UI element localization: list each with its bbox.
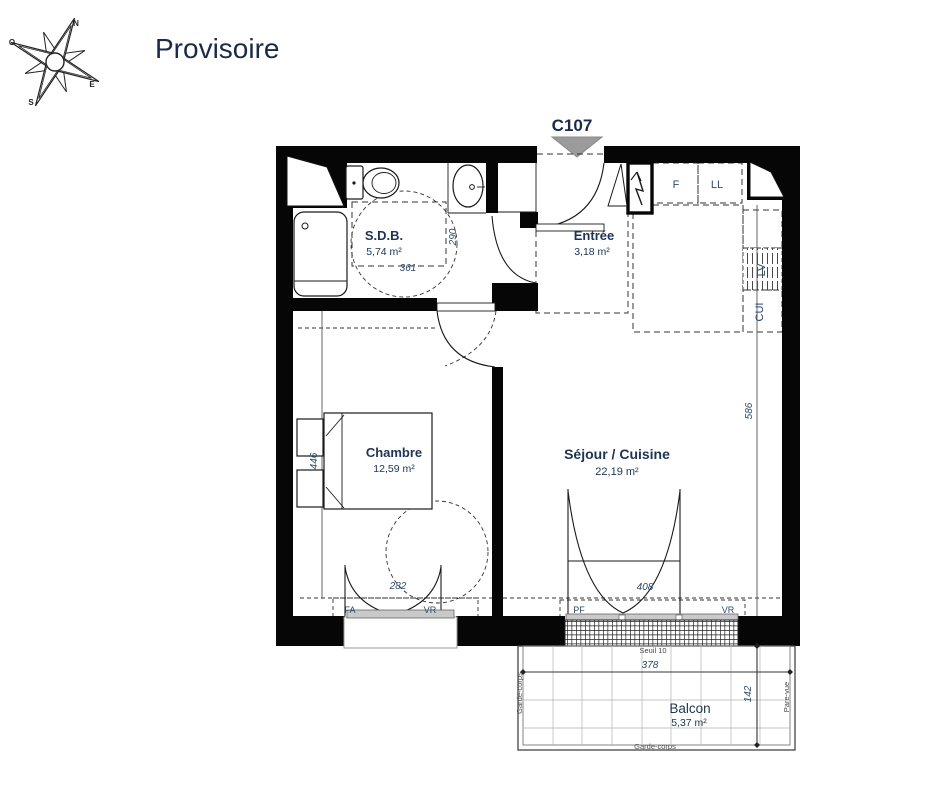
washing-machine-label: LL — [711, 179, 723, 191]
balcon-area: 5,37 m² — [671, 717, 707, 729]
dimension-lines — [322, 205, 757, 616]
tag-fa: FA — [344, 605, 355, 615]
sejour-name: Séjour / Cuisine — [564, 446, 670, 462]
electrical-panel-icon — [628, 163, 652, 213]
chambre-door-dashed-swing — [445, 311, 496, 366]
balcony-french-door — [568, 489, 680, 615]
balcon-name: Balcon — [669, 701, 710, 716]
sdb-area: 5,74 m² — [366, 246, 402, 258]
bed-icon — [324, 413, 432, 509]
fridge-label: F — [673, 179, 680, 191]
floor-plan-page: N O E S Provisoire C107 — [0, 0, 929, 800]
dim-balcony-width: 378 — [642, 660, 659, 671]
tag-vr-sejour: VR — [722, 605, 735, 615]
entree-name: Entrée — [574, 228, 614, 243]
dim-balcony-door: 408 — [637, 582, 654, 593]
dim-sejour-depth: 586 — [744, 402, 755, 419]
compass-rose-icon: N O E S — [0, 0, 118, 125]
compass-north-label: N — [73, 19, 79, 28]
duct-top-right — [747, 158, 788, 200]
washbasin-icon — [453, 165, 485, 207]
nightstand-icon — [297, 419, 323, 456]
chambre-window-sill — [344, 610, 457, 648]
threshold-hatch — [565, 620, 738, 646]
chambre-area: 12,59 m² — [373, 463, 415, 475]
unit-label: C107 — [552, 116, 593, 135]
sdb-turning-circle — [351, 191, 457, 297]
nightstand-icon — [297, 470, 323, 507]
sdb-name: S.D.B. — [365, 228, 403, 243]
entrance-door — [536, 163, 604, 231]
threshold-label: Seuil 10 — [639, 646, 666, 655]
walls — [276, 146, 800, 646]
dishwasher-label: LV — [756, 263, 768, 276]
dim-balcony-depth: 142 — [743, 685, 754, 702]
chambre-name: Chambre — [366, 445, 422, 460]
toilet-icon — [346, 166, 399, 199]
guardrail-bottom-label: Garde-corps — [634, 742, 676, 751]
sejour-area: 22,19 m² — [595, 466, 639, 478]
dim-sdb-width: 361 — [400, 263, 417, 274]
floor-plan-drawing: N O E S Provisoire C107 — [0, 0, 929, 800]
privacy-screen-label: Pare-vue — [782, 682, 791, 712]
duct-top-left — [285, 153, 347, 208]
dim-chambre-window: 282 — [389, 581, 407, 592]
kitchen-counter-label: CUI — [754, 303, 766, 322]
shower-icon — [294, 212, 347, 296]
page-title: Provisoire — [155, 33, 279, 64]
entree-area: 3,18 m² — [574, 246, 610, 258]
compass-east-label: E — [89, 80, 95, 89]
dim-sdb-depth: 290 — [448, 228, 459, 246]
chambre-door — [437, 303, 495, 367]
panel-door-leaf — [608, 164, 627, 206]
compass-south-label: S — [28, 98, 34, 107]
compass-west-label: O — [9, 38, 15, 47]
guardrail-left-label: Garde-corps — [515, 672, 524, 714]
tag-pf: PF — [573, 605, 585, 615]
tag-vr-chambre: VR — [424, 605, 437, 615]
dim-chambre-depth: 446 — [309, 452, 320, 469]
